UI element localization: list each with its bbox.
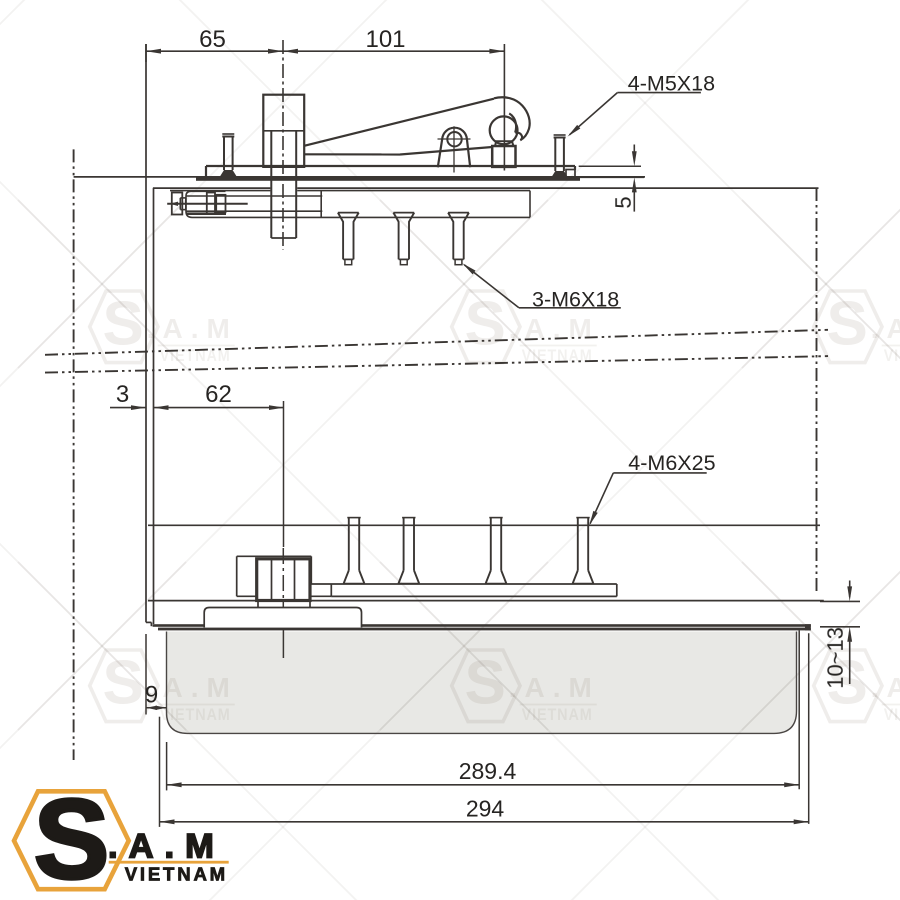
svg-text:VIETNAM: VIETNAM (884, 706, 900, 724)
svg-text:9: 9 (145, 682, 158, 709)
svg-text:.A.M: .A.M (147, 313, 238, 344)
svg-text:S: S (103, 648, 144, 717)
svg-text:.A.M: .A.M (147, 672, 238, 703)
svg-text:10~13: 10~13 (823, 627, 848, 689)
svg-text:4-M6X25: 4-M6X25 (628, 451, 715, 475)
svg-text:294: 294 (466, 796, 505, 822)
svg-text:S: S (103, 289, 144, 358)
svg-text:S: S (34, 776, 109, 900)
svg-text:5: 5 (611, 196, 636, 208)
svg-text:VIETNAM: VIETNAM (522, 706, 593, 724)
svg-text:65: 65 (199, 26, 226, 53)
svg-text:62: 62 (205, 381, 232, 408)
svg-text:VIETNAM: VIETNAM (884, 347, 900, 365)
svg-text:.A.M: .A.M (108, 828, 225, 866)
svg-text:S: S (827, 289, 868, 358)
svg-text:VIETNAM: VIETNAM (125, 864, 228, 885)
svg-text:4-M5X18: 4-M5X18 (628, 71, 715, 95)
svg-text:.A.M: .A.M (871, 313, 900, 344)
svg-text:289.4: 289.4 (459, 758, 517, 784)
svg-text:101: 101 (365, 26, 405, 53)
svg-text:S: S (465, 289, 506, 358)
svg-text:.A.M: .A.M (509, 672, 600, 703)
svg-text:.A.M: .A.M (509, 313, 600, 344)
svg-text:S: S (465, 648, 506, 717)
svg-text:.A.M: .A.M (871, 672, 900, 703)
svg-text:VIETNAM: VIETNAM (160, 706, 231, 724)
svg-text:3: 3 (116, 381, 129, 408)
